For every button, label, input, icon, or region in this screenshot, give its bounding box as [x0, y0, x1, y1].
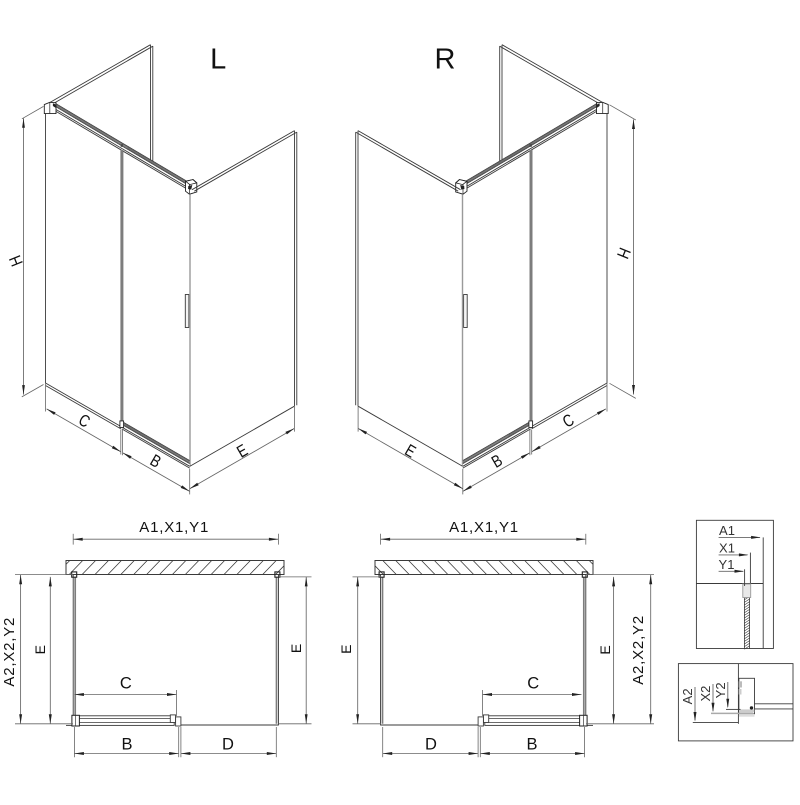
svg-text:E: E — [288, 644, 304, 653]
svg-text:X2: X2 — [698, 686, 713, 702]
svg-text:R: R — [435, 44, 456, 76]
svg-text:D: D — [425, 736, 437, 754]
svg-text:Y2: Y2 — [713, 682, 728, 698]
svg-text:E: E — [597, 645, 613, 654]
svg-text:L: L — [210, 44, 226, 76]
svg-text:A1,X1,Y1: A1,X1,Y1 — [449, 519, 519, 536]
svg-text:B: B — [121, 736, 132, 754]
svg-text:A2,X2,Y2: A2,X2,Y2 — [1, 617, 18, 687]
svg-text:A2,X2,Y2: A2,X2,Y2 — [630, 615, 647, 685]
svg-text:X1: X1 — [719, 541, 735, 556]
svg-text:D: D — [222, 736, 234, 754]
svg-text:E: E — [32, 645, 48, 654]
svg-text:A2: A2 — [680, 688, 695, 704]
svg-text:E: E — [338, 645, 354, 654]
svg-text:A1,X1,Y1: A1,X1,Y1 — [139, 519, 209, 536]
svg-text:C: C — [527, 675, 539, 693]
svg-text:A1: A1 — [719, 523, 735, 538]
svg-text:C: C — [120, 675, 132, 693]
svg-text:Y1: Y1 — [719, 557, 735, 572]
svg-text:B: B — [526, 736, 537, 754]
